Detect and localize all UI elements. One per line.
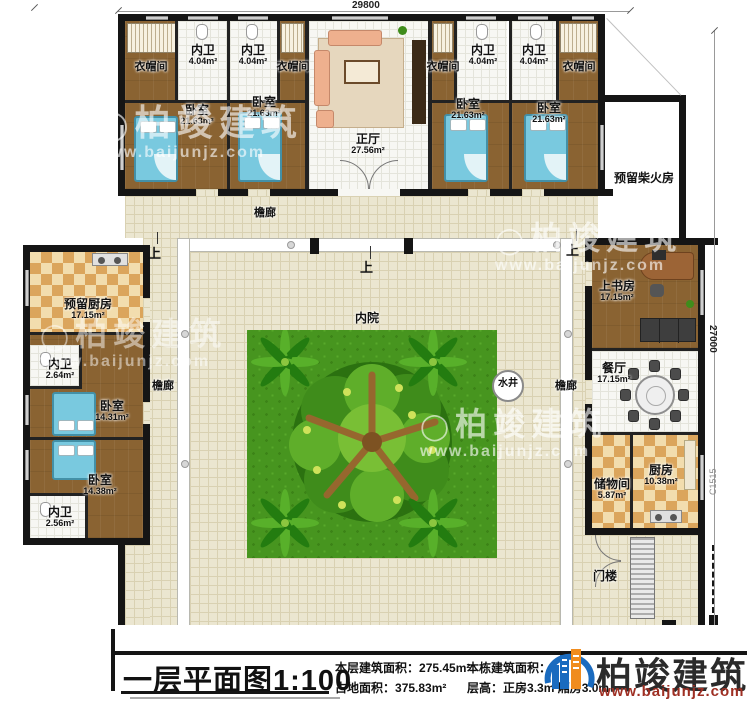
room-label-toilet: 内卫2.56m² (46, 506, 75, 528)
threshold-post (404, 238, 413, 254)
stair-up-label: 上 (148, 243, 161, 262)
room-label-bedroom: 卧室21.63m² (180, 104, 214, 126)
border-dot (181, 330, 189, 338)
room-label-kitchen: 厨房10.38m² (644, 464, 678, 486)
plant-icon (686, 300, 694, 308)
toilet-icon (196, 24, 208, 40)
palm-icon (399, 489, 467, 557)
closet-icon (560, 23, 597, 53)
room-label-firewood: 预留柴火房 (614, 172, 674, 185)
room-label-gatehouse: 门楼 (593, 570, 617, 583)
toilet-icon (530, 24, 542, 40)
courtyard-border-left (177, 238, 190, 628)
room-label-bedroom: 卧室21.63m² (247, 96, 281, 118)
room-label-toilet: 内卫4.04m² (239, 44, 268, 66)
window (25, 270, 29, 306)
title-underline-2 (130, 697, 340, 699)
window (700, 270, 704, 315)
dimension-line-top (118, 11, 630, 12)
veranda-top-floor (125, 196, 598, 238)
window (238, 16, 268, 20)
window (120, 125, 124, 170)
room-label-main-hall: 正厅27.56m² (351, 133, 385, 155)
room-label-well: 水井 (498, 379, 518, 390)
stove-icon (92, 253, 128, 266)
window (188, 16, 218, 20)
courtyard-border-right (560, 238, 573, 628)
big-tree-icon (289, 362, 452, 522)
door-opening (585, 380, 592, 404)
desk (640, 252, 694, 280)
coffee-table (344, 60, 380, 84)
room-label-toilet: 内卫4.04m² (189, 44, 218, 66)
room-label-inner-court: 内院 (355, 312, 379, 325)
border-dot (287, 241, 295, 249)
stray-tick (31, 4, 38, 11)
front-yard-strip (125, 545, 150, 628)
toilet-icon (246, 24, 258, 40)
brand-logo-icon (540, 643, 596, 701)
room-label-toilet: 内卫4.04m² (469, 44, 498, 66)
chair (650, 284, 664, 297)
window (518, 16, 548, 20)
door-opening (522, 189, 544, 196)
room-label-cloakroom: 衣帽间 (135, 62, 168, 74)
stat-floor-area: 本层建筑面积：275.45m² (335, 659, 470, 676)
eave-line (606, 18, 681, 96)
border-dot (564, 330, 572, 338)
armchair (316, 110, 334, 128)
room-label-toilet: 内卫2.64m² (46, 358, 75, 380)
closet-icon (281, 23, 304, 53)
door-opening (196, 189, 218, 196)
window-code: C1515 (708, 468, 718, 495)
stair-up-label: 上 (566, 240, 579, 259)
dimension-right: 27000 (707, 325, 718, 353)
room-label-veranda: 檐廊 (152, 381, 174, 393)
plant-icon (398, 26, 407, 35)
door-opening (143, 402, 150, 424)
door-opening (585, 262, 592, 286)
computer-icon (652, 250, 666, 260)
door-opening (468, 189, 490, 196)
courtyard-border-top (177, 238, 573, 252)
room-label-toilet: 内卫4.04m² (520, 44, 549, 66)
tv-cabinet (412, 40, 426, 124)
palm-icon (251, 330, 319, 396)
palm-icon (251, 489, 319, 557)
window (572, 16, 594, 20)
main-hall-door-opening (338, 189, 400, 196)
sofa (328, 30, 382, 46)
gatehouse-steps (630, 537, 655, 619)
door-opening (248, 189, 270, 196)
bed (444, 114, 488, 182)
window (25, 395, 29, 425)
stat-site-area: 占地面积：375.83m² (335, 679, 446, 696)
title-block: 一层平面图1:100 本层建筑面积：275.45m² 占地面积：375.83m²… (0, 625, 750, 707)
room-label-bedroom: 卧室21.63m² (532, 102, 566, 124)
dimension-top: 29800 (352, 0, 380, 11)
window (25, 450, 29, 480)
stat-building-area: 本栋建筑面积： (467, 659, 551, 676)
courtyard-trees (247, 330, 497, 558)
toilet-icon (476, 24, 488, 40)
border-dot (553, 241, 561, 249)
room-label-cloakroom: 衣帽间 (563, 62, 596, 74)
palm-icon (399, 330, 467, 396)
bed (52, 392, 96, 436)
room-label-bedroom: 卧室21.63m² (451, 98, 485, 120)
bed (134, 116, 178, 182)
bed (238, 112, 282, 182)
room-label-cloakroom: 衣帽间 (427, 62, 460, 74)
window (466, 16, 496, 20)
threshold-post (310, 238, 319, 254)
stove-icon (650, 510, 682, 523)
room-label-bedroom: 卧室14.38m² (83, 474, 117, 496)
window (146, 16, 168, 20)
room-label-veranda: 檐廊 (254, 208, 276, 220)
door-opening (143, 298, 150, 322)
room-label-veranda: 檐廊 (555, 381, 577, 393)
title-underline (121, 691, 329, 694)
floor-plan: 上 上 上 衣帽间 内卫4.04m² 内卫4.04m² 衣帽间 卧室21.63m… (0, 0, 750, 707)
closet-icon (127, 23, 176, 53)
window (332, 16, 388, 20)
window (600, 125, 604, 170)
counter (684, 440, 696, 490)
border-dot (564, 460, 572, 468)
dining-table (635, 375, 675, 415)
brand-url: www.baijunjz.com (599, 683, 744, 700)
room-label-storage: 储物间5.87m² (594, 478, 630, 500)
bed (524, 114, 568, 182)
sofa (314, 50, 330, 106)
window (700, 455, 704, 500)
room-label-reserved-kitchen: 预留厨房17.15m² (64, 298, 112, 320)
room-label-study: 上书房17.15m² (599, 280, 635, 302)
stair-up-label: 上 (360, 257, 373, 276)
sofa-dark (640, 318, 696, 342)
room-label-dining: 餐厅17.15m² (597, 362, 631, 384)
room-label-cloakroom: 衣帽间 (277, 62, 310, 74)
room-label-bedroom: 卧室14.31m² (95, 400, 129, 422)
border-dot (181, 460, 189, 468)
closet-icon (433, 23, 453, 53)
